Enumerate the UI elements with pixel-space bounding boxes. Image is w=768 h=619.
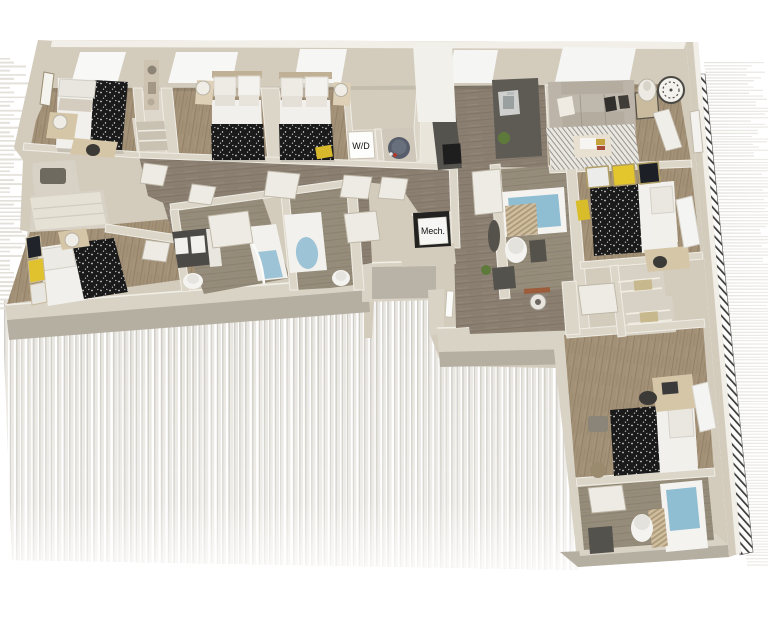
svg-text:Mech.: Mech. xyxy=(421,226,445,236)
svg-text:W/D: W/D xyxy=(352,141,370,151)
